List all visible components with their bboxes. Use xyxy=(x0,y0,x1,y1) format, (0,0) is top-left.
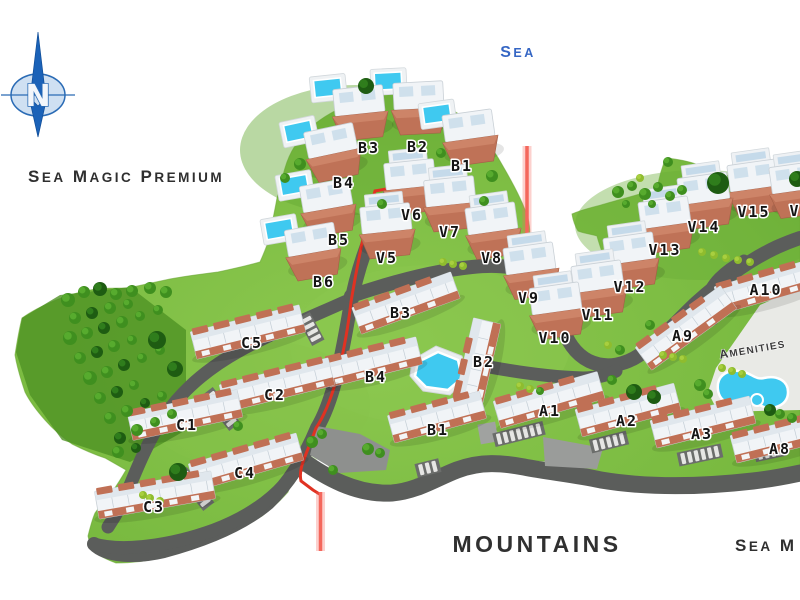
building-label-b4-block: B4 xyxy=(365,368,387,386)
tree-icon xyxy=(150,417,160,427)
tree-icon xyxy=(665,191,675,201)
tree-icon xyxy=(118,359,130,371)
tree-icon xyxy=(439,258,447,266)
tree-icon xyxy=(607,375,617,385)
building-label-b5-villa: B5 xyxy=(328,231,350,249)
building-label-c5: C5 xyxy=(241,334,263,352)
building-label-v12: V12 xyxy=(613,278,646,296)
tree-icon xyxy=(110,288,122,300)
tree-icon xyxy=(116,316,128,328)
building-label-v14: V14 xyxy=(687,218,720,236)
tree-icon xyxy=(775,409,785,419)
tree-icon xyxy=(516,382,524,390)
tree-icon xyxy=(94,392,106,404)
tree-icon xyxy=(694,379,706,391)
tree-icon xyxy=(104,412,116,424)
building-label-a1: A1 xyxy=(539,402,561,420)
building-label-b4-villa: B4 xyxy=(333,174,355,192)
tree-icon xyxy=(114,432,126,444)
site-map: B2B3B1B4V6V15VV14V7B5V13V5V8B6V12V9A10V1… xyxy=(0,0,800,600)
tree-icon xyxy=(486,170,498,182)
mountains-label: MOUNTAINS xyxy=(452,531,621,557)
tree-icon xyxy=(738,370,746,378)
tree-icon xyxy=(233,421,243,431)
building-label-v6: V6 xyxy=(401,206,423,224)
tree-icon xyxy=(140,398,150,408)
tree-icon xyxy=(328,465,338,475)
building-label-b2-villa: B2 xyxy=(407,138,429,156)
tree-icon xyxy=(280,173,290,183)
tree-icon xyxy=(78,286,90,298)
building-label-b1-villa: B1 xyxy=(451,157,473,175)
tree-icon xyxy=(636,174,644,182)
tree-icon xyxy=(294,158,306,170)
tree-icon xyxy=(123,299,133,309)
tree-icon xyxy=(627,181,637,191)
tree-icon xyxy=(377,199,387,209)
plan-title: SEA MAGIC PREMIUM xyxy=(28,167,224,186)
tree-icon xyxy=(375,448,385,458)
tree-icon xyxy=(449,260,457,268)
tree-icon xyxy=(459,262,467,270)
tree-icon xyxy=(93,282,107,296)
tree-icon xyxy=(746,258,754,266)
tree-icon xyxy=(69,312,81,324)
tree-icon xyxy=(131,443,141,453)
tree-icon xyxy=(127,335,137,345)
tree-icon xyxy=(604,341,612,349)
tree-icon xyxy=(703,389,713,399)
tree-icon xyxy=(104,302,116,314)
tree-icon xyxy=(137,353,147,363)
building-label-c1: C1 xyxy=(176,416,198,434)
building-label-a10: A10 xyxy=(749,281,782,299)
building-label-v13: V13 xyxy=(648,241,681,259)
building-label-v10: V10 xyxy=(538,329,571,347)
tree-icon xyxy=(626,384,642,400)
compass-letter: N xyxy=(25,79,50,114)
tree-icon xyxy=(121,405,133,417)
tree-icon xyxy=(677,185,687,195)
tree-icon xyxy=(160,286,172,298)
tree-icon xyxy=(479,196,489,206)
tree-icon xyxy=(648,200,656,208)
building-label-a3: A3 xyxy=(691,425,713,443)
tree-icon xyxy=(647,390,661,404)
building-label-a9: A9 xyxy=(672,327,694,345)
bottom-right-partial-label: SEA M xyxy=(735,536,797,555)
tree-icon xyxy=(612,186,624,198)
building-label-v7: V7 xyxy=(439,223,461,241)
tree-icon xyxy=(129,380,139,390)
tree-icon xyxy=(86,307,98,319)
tree-icon xyxy=(362,443,374,455)
tree-icon xyxy=(131,424,143,436)
tree-icon xyxy=(167,361,183,377)
tree-icon xyxy=(98,322,110,334)
tree-icon xyxy=(526,385,534,393)
tree-icon xyxy=(728,367,736,375)
tree-icon xyxy=(653,182,663,192)
building-label-v8: V8 xyxy=(481,249,503,267)
tree-icon xyxy=(536,387,544,395)
tree-icon xyxy=(722,254,730,262)
tree-icon xyxy=(764,404,776,416)
tree-icon xyxy=(615,345,625,355)
tree-icon xyxy=(61,293,75,307)
sea-label: SEA xyxy=(500,44,536,61)
tree-icon xyxy=(358,78,374,94)
amenities-jacuzzi xyxy=(751,394,763,406)
building-label-c3: C3 xyxy=(143,498,165,516)
building-label-v15: V15 xyxy=(737,203,770,221)
tree-icon xyxy=(83,371,97,385)
tree-icon xyxy=(135,311,145,321)
building-label-b6-villa: B6 xyxy=(313,273,335,291)
tree-icon xyxy=(306,436,318,448)
building-label-v9: V9 xyxy=(518,289,540,307)
tree-icon xyxy=(91,346,103,358)
building-label-v5: V5 xyxy=(376,249,398,267)
building-label-c2: C2 xyxy=(264,386,286,404)
building-label-c4: C4 xyxy=(234,464,256,482)
tree-icon xyxy=(153,305,163,315)
tree-icon xyxy=(663,157,673,167)
tree-icon xyxy=(436,148,446,158)
building-label-b2-block: B2 xyxy=(473,353,495,371)
tree-icon xyxy=(710,251,718,259)
tree-icon xyxy=(645,320,655,330)
tree-icon xyxy=(718,364,726,372)
tree-icon xyxy=(112,446,124,458)
tree-icon xyxy=(157,391,167,401)
building-label-b1-block: B1 xyxy=(427,421,449,439)
tree-icon xyxy=(81,327,93,339)
building-label-a8: A8 xyxy=(769,440,791,458)
building-label-a2: A2 xyxy=(616,412,638,430)
tree-icon xyxy=(108,340,120,352)
building-label-b3-block: B3 xyxy=(390,304,412,322)
tree-icon xyxy=(734,256,742,264)
tree-icon xyxy=(317,429,327,439)
tree-icon xyxy=(144,282,156,294)
building-label-b3-villa: B3 xyxy=(358,139,380,157)
tree-icon xyxy=(148,331,166,349)
compass-rose: N xyxy=(1,32,75,137)
tree-icon xyxy=(111,386,123,398)
tree-icon xyxy=(698,248,706,256)
tree-icon xyxy=(787,413,797,423)
tree-icon xyxy=(669,353,677,361)
building-label-v11: V11 xyxy=(581,306,614,324)
tree-icon xyxy=(659,351,667,359)
building-label-v16-partial: V xyxy=(789,202,800,220)
tree-icon xyxy=(679,355,687,363)
tree-icon xyxy=(101,366,113,378)
tree-icon xyxy=(169,463,187,481)
tree-icon xyxy=(622,200,630,208)
tree-icon xyxy=(707,172,729,194)
tree-icon xyxy=(126,285,138,297)
tree-icon xyxy=(74,352,86,364)
tree-icon xyxy=(63,331,77,345)
tree-icon xyxy=(639,188,651,200)
